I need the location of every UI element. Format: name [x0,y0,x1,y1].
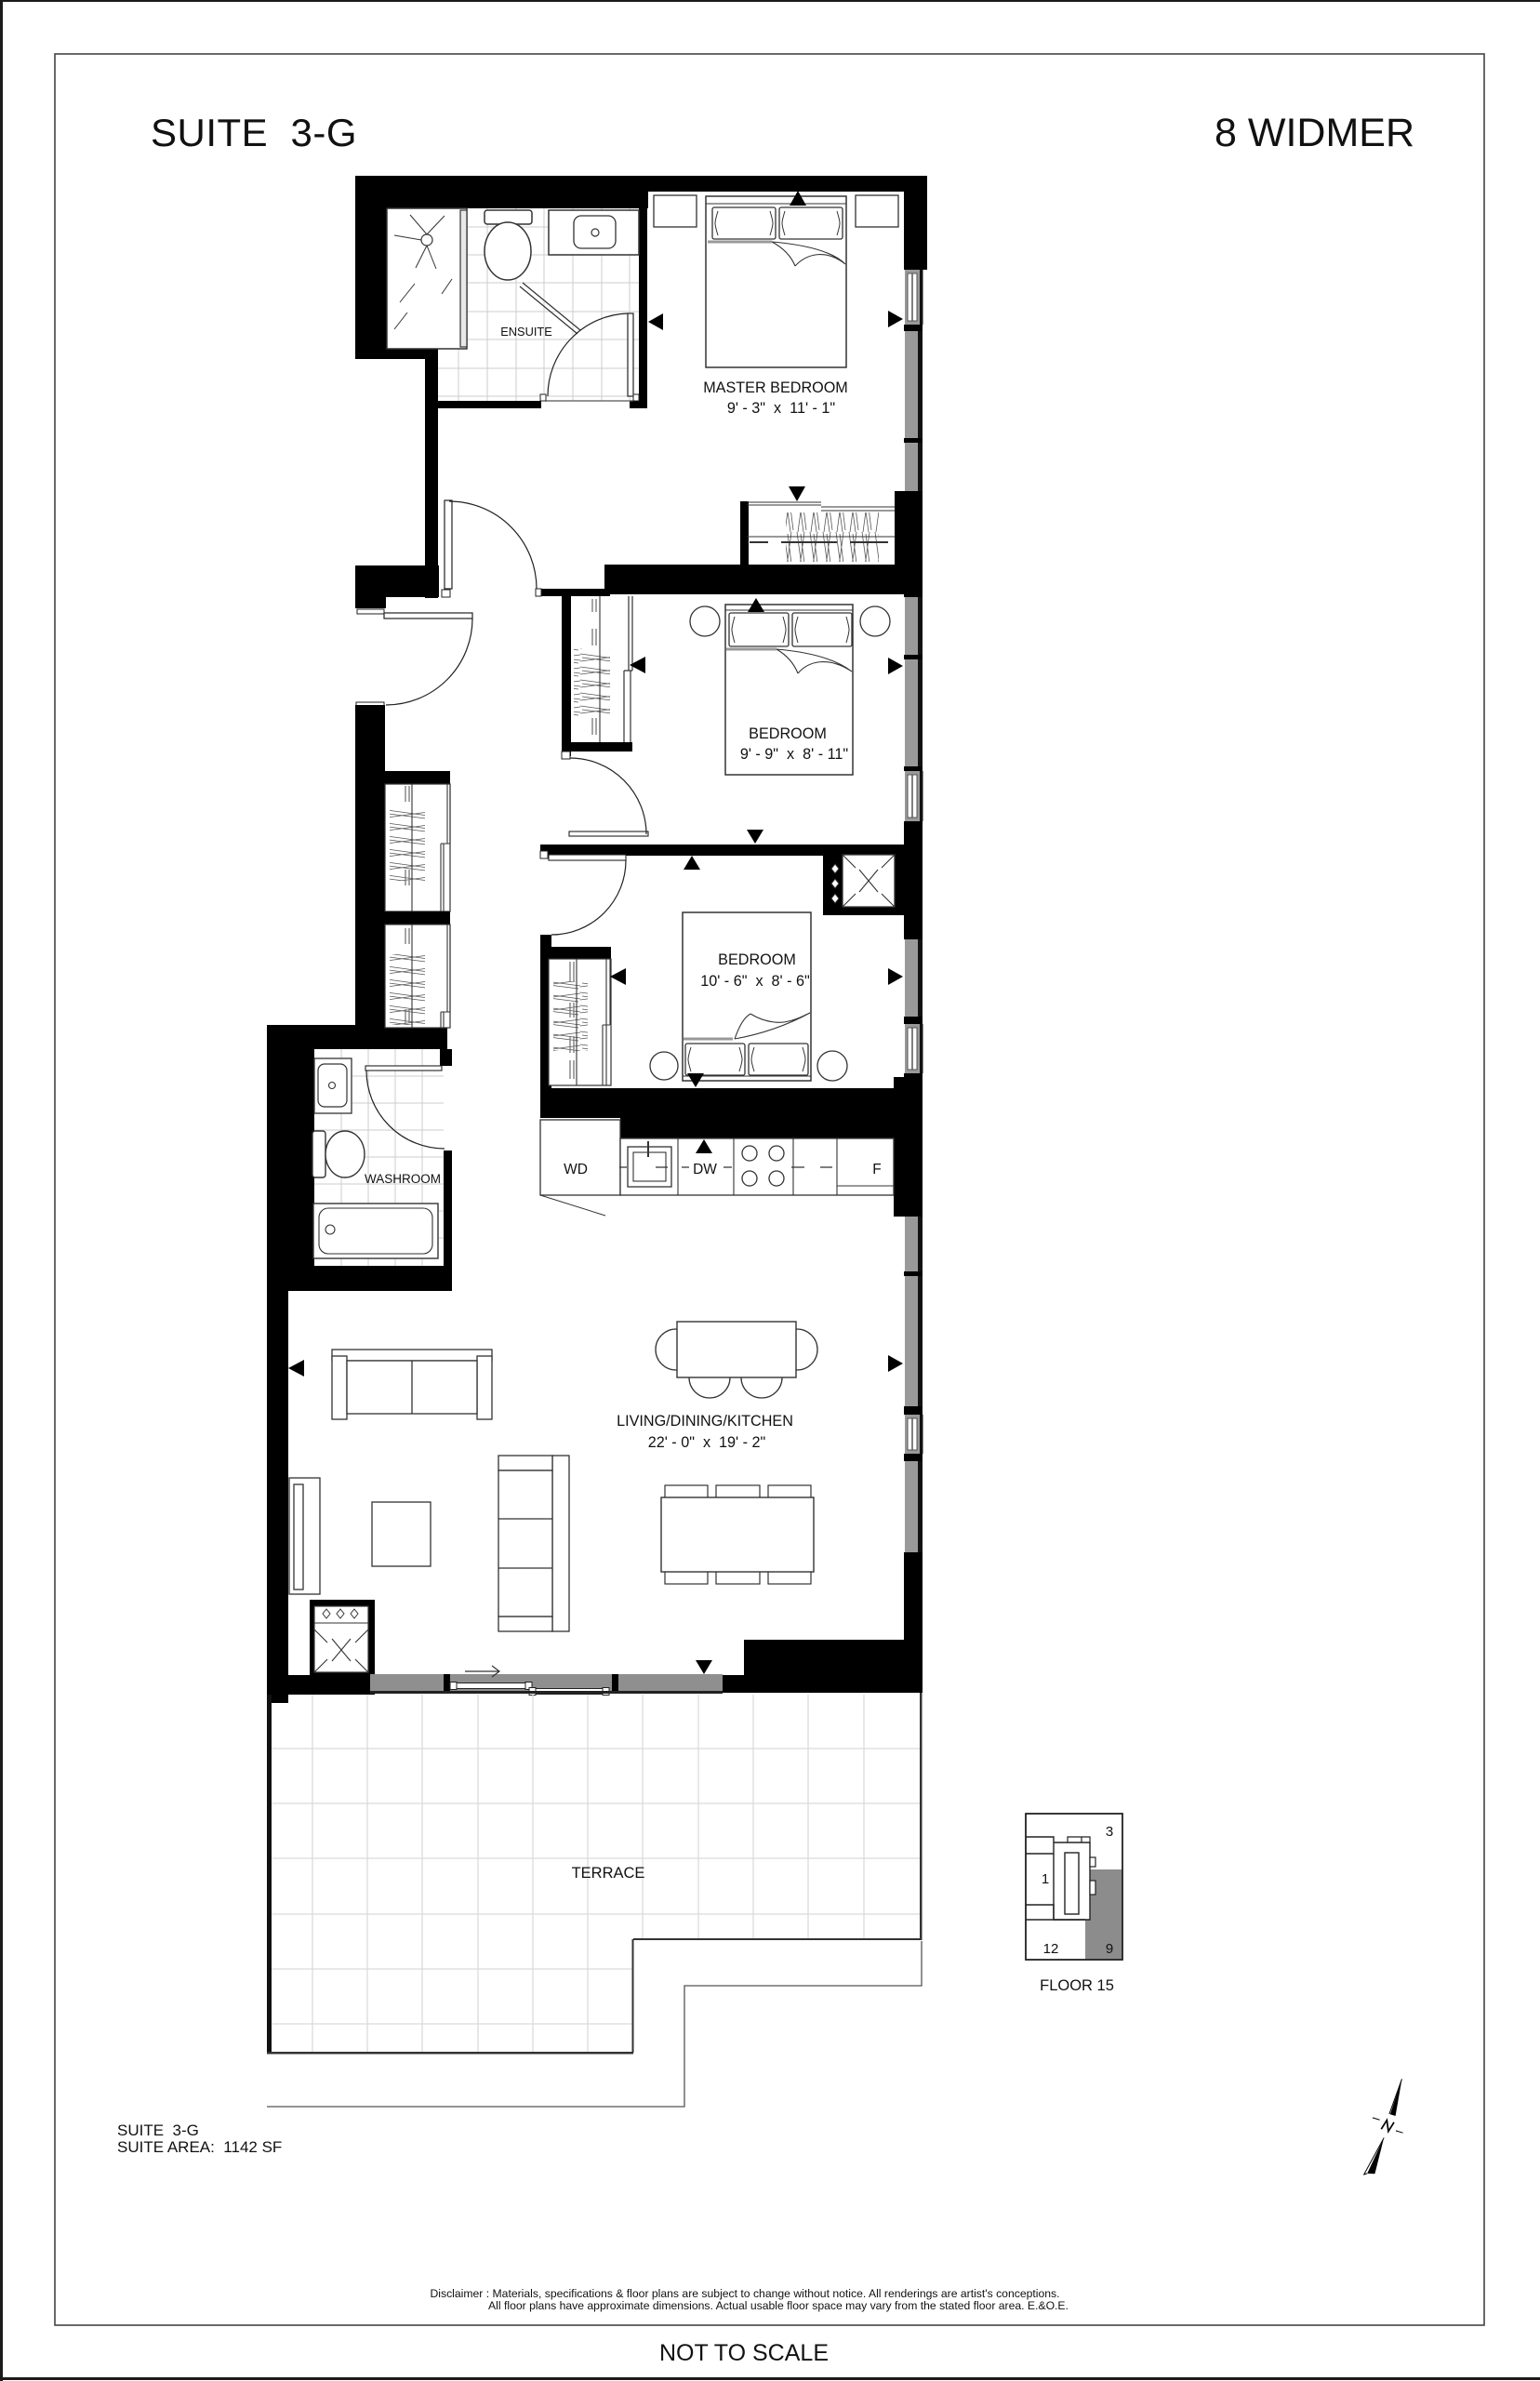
svg-text:SUITE 3-G: SUITE 3-G [117,2122,199,2139]
svg-text:3: 3 [1106,1824,1113,1840]
svg-text:All floor plans have approxima: All floor plans have approximate dimensi… [488,2299,1069,2312]
svg-text:10' - 6" x 8' - 6": 10' - 6" x 8' - 6" [700,973,810,990]
svg-text:TERRACE: TERRACE [572,1865,645,1882]
svg-text:WASHROOM: WASHROOM [365,1172,441,1186]
svg-text:22' - 0" x 19' - 2": 22' - 0" x 19' - 2" [648,1434,766,1451]
svg-text:9' - 3" x 11' - 1": 9' - 3" x 11' - 1" [727,400,836,417]
svg-text:BEDROOM: BEDROOM [749,725,827,742]
svg-text:8 WIDMER: 8 WIDMER [1215,111,1414,155]
svg-text:FLOOR 15: FLOOR 15 [1040,1977,1114,1994]
svg-text:BEDROOM: BEDROOM [718,951,796,968]
svg-text:1: 1 [1042,1871,1049,1887]
svg-text:SUITE AREA: 1142 SF: SUITE AREA: 1142 SF [117,2138,282,2156]
svg-text:9: 9 [1106,1941,1113,1957]
svg-text:MASTER BEDROOM: MASTER BEDROOM [703,379,848,396]
svg-text:DW: DW [693,1162,717,1177]
svg-text:9' - 9" x 8' - 11": 9' - 9" x 8' - 11" [740,746,849,763]
svg-text:12: 12 [1043,1941,1059,1957]
svg-text:WD: WD [564,1162,588,1177]
svg-text:SUITE 3-G: SUITE 3-G [151,111,357,154]
svg-text:LIVING/DINING/KITCHEN: LIVING/DINING/KITCHEN [617,1413,793,1430]
svg-text:Disclaimer : Materials, specif: Disclaimer : Materials, specifications &… [430,2287,1059,2300]
svg-text:F: F [872,1162,881,1177]
svg-text:NOT TO SCALE: NOT TO SCALE [659,2340,829,2366]
svg-text:ENSUITE: ENSUITE [500,325,551,339]
